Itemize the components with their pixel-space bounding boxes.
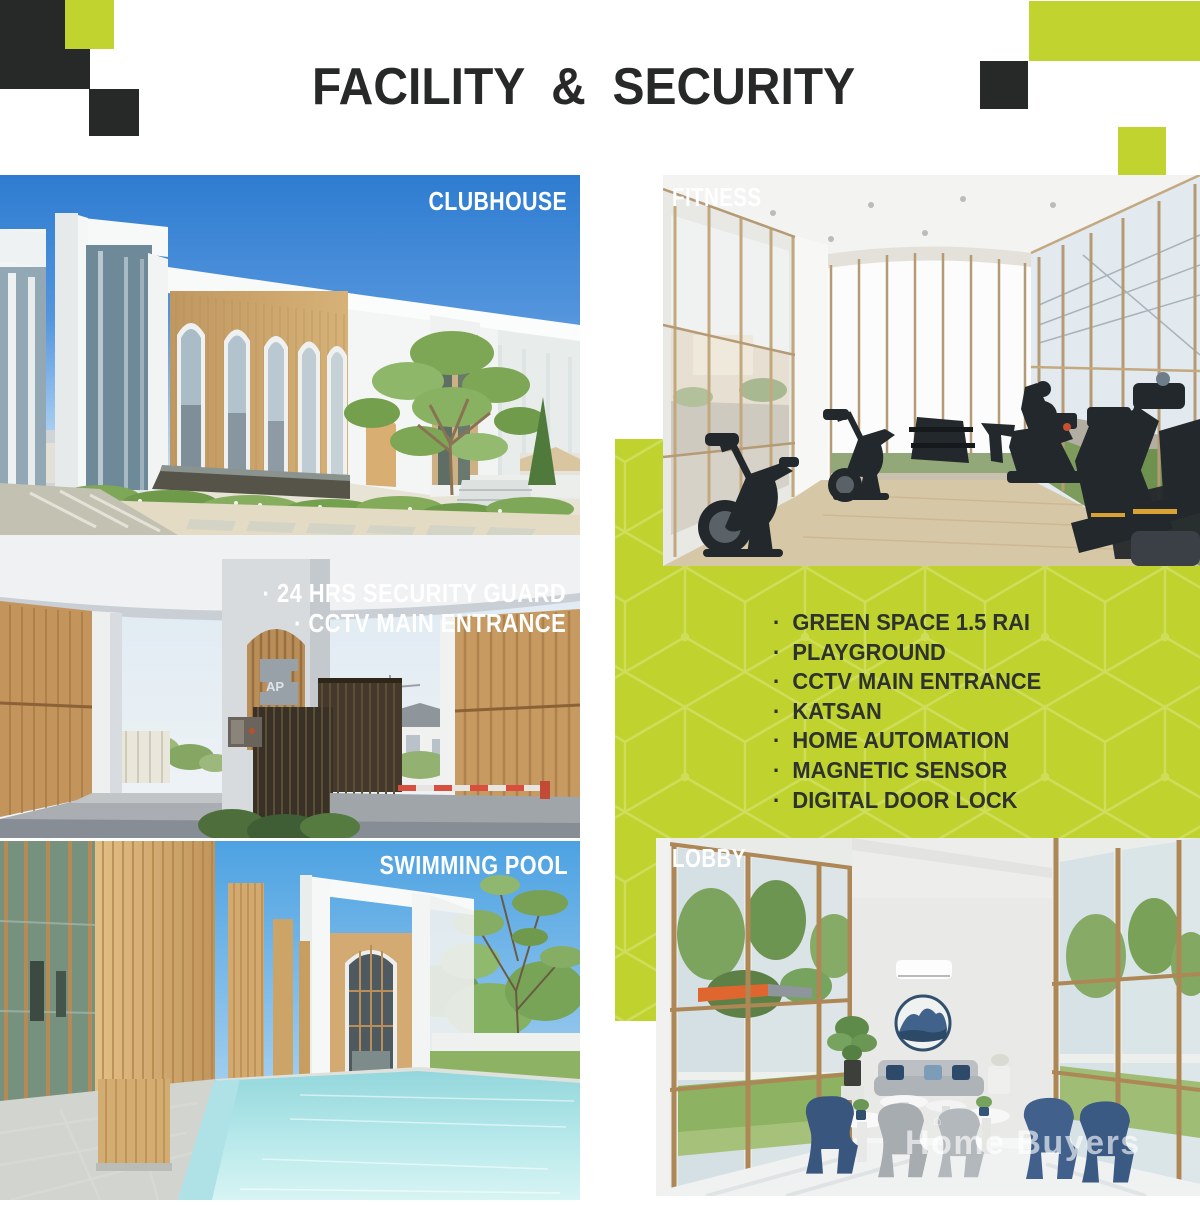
svg-text:AP: AP bbox=[266, 679, 284, 694]
